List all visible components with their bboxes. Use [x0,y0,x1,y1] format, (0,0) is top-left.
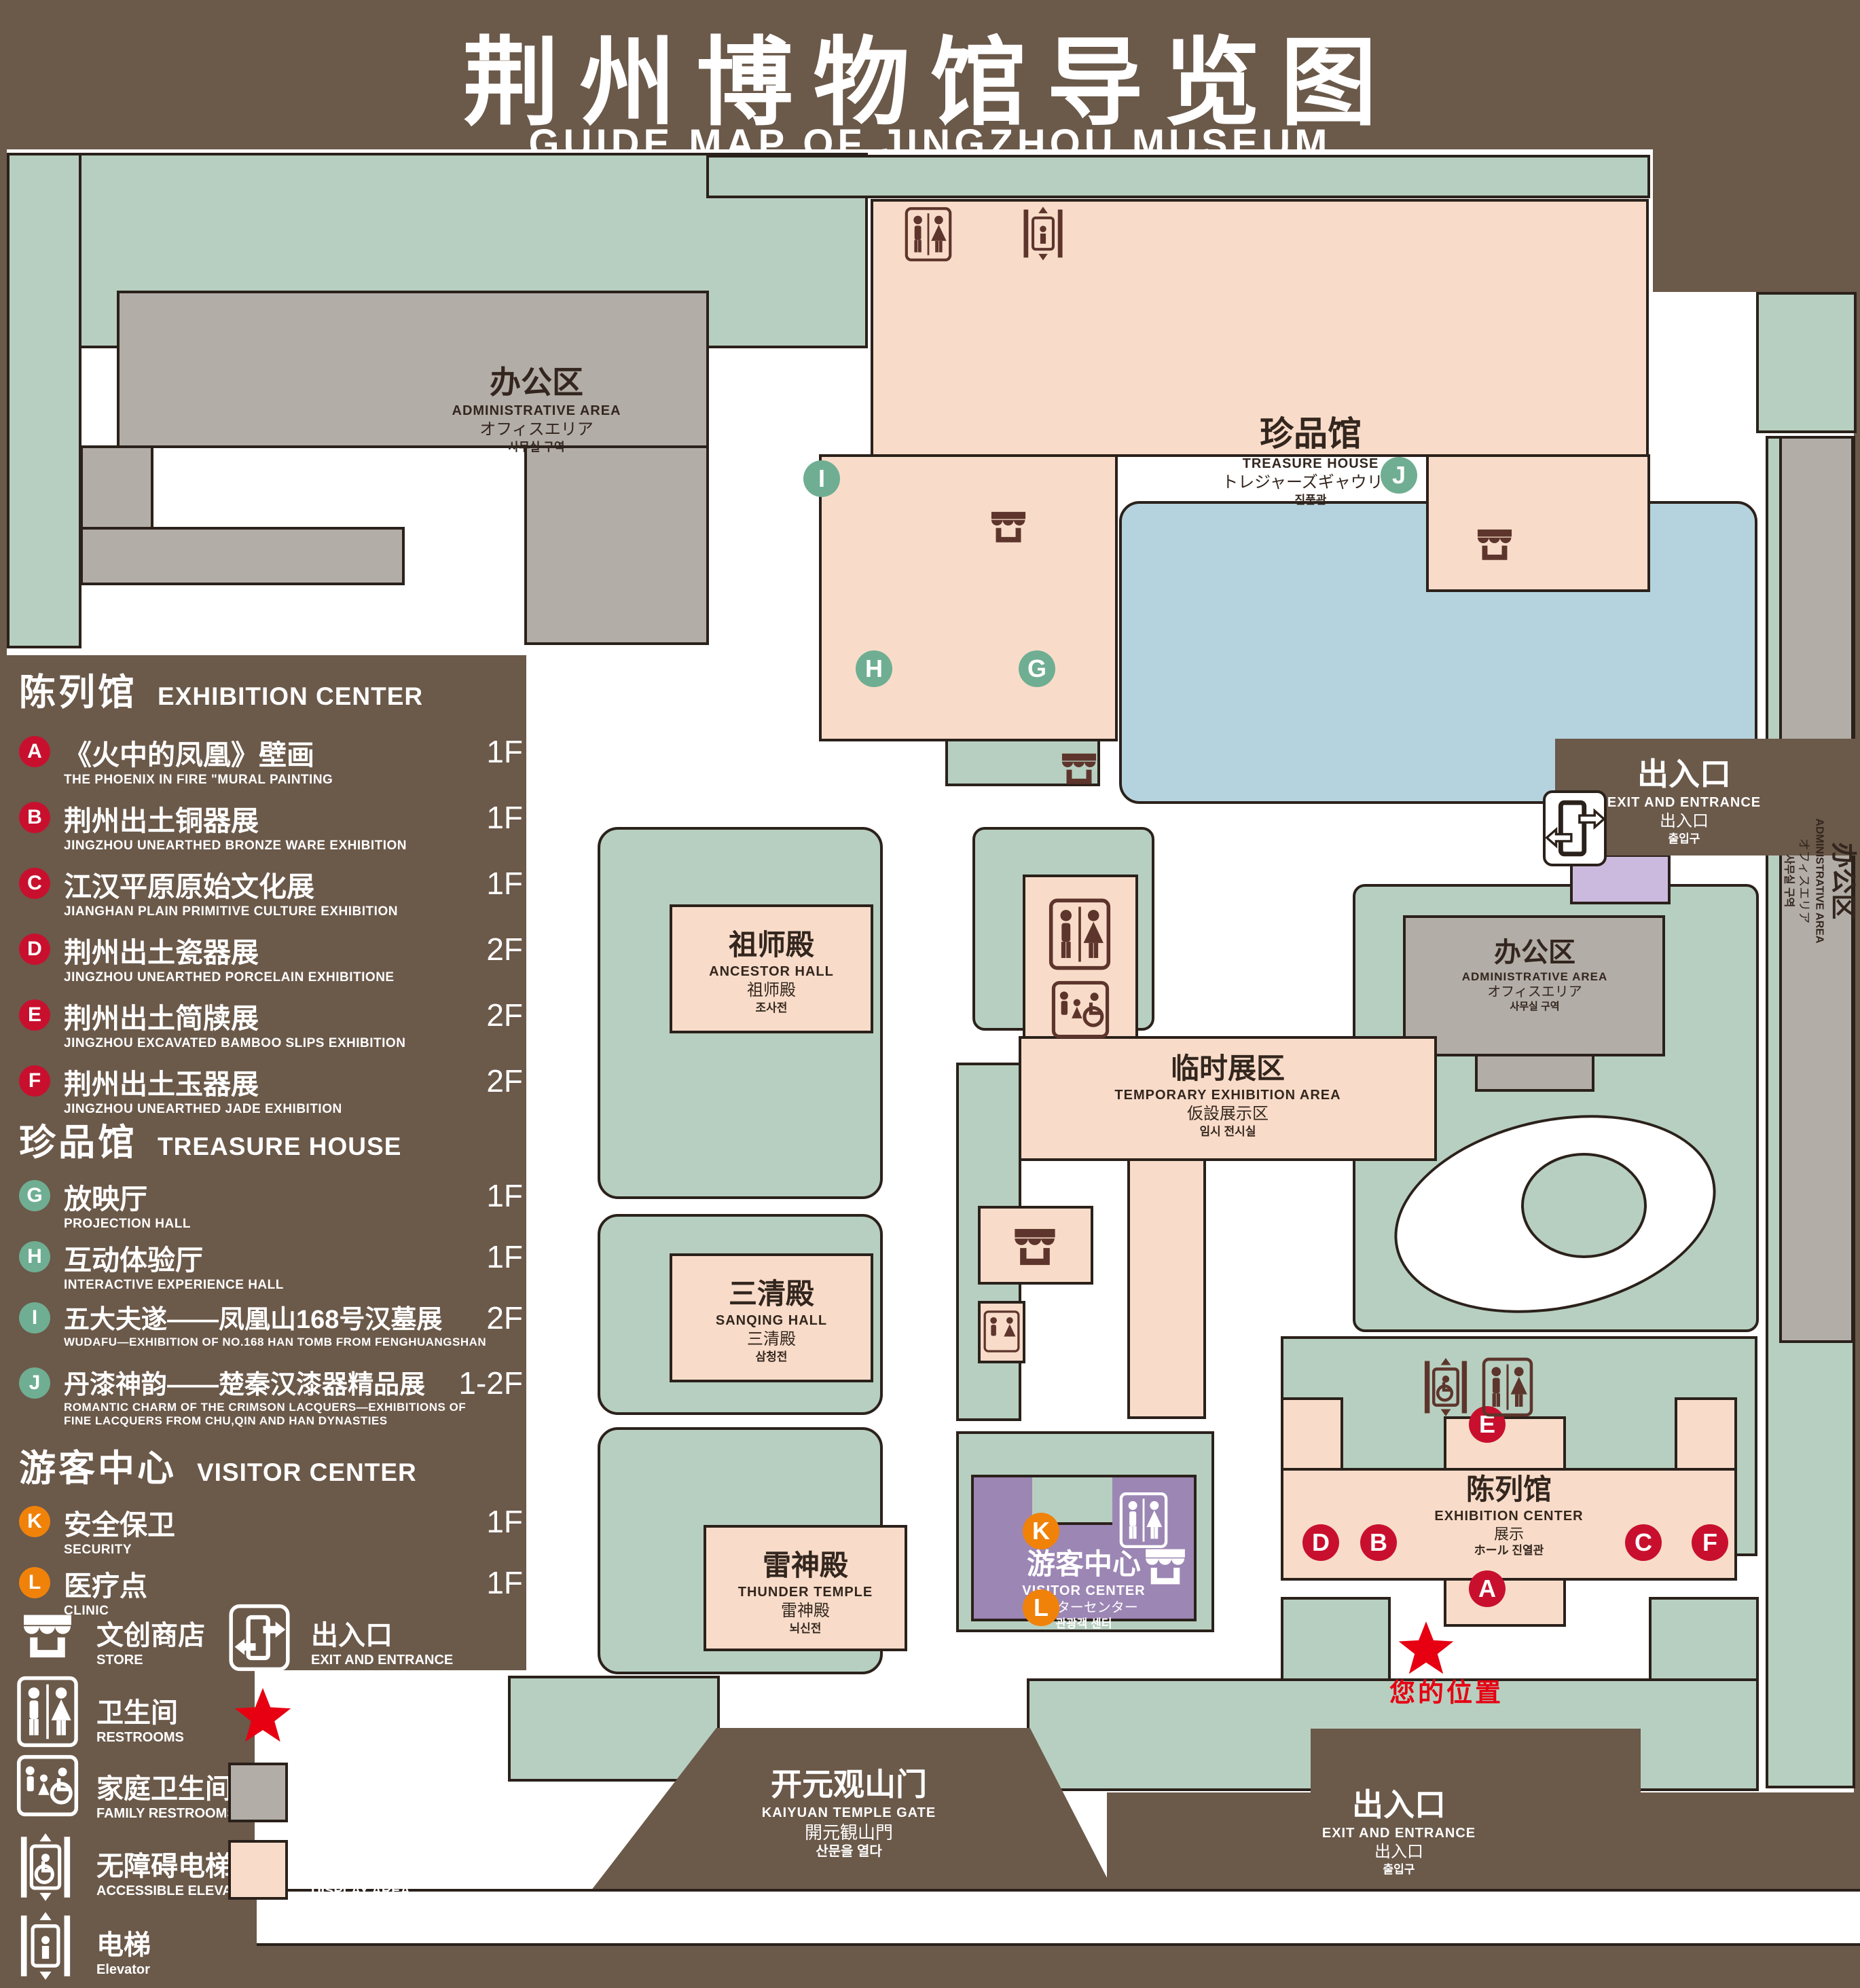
building-exhibition-center [1281,1397,1343,1471]
legend-elevator: 电梯 Elevator [96,1923,151,1978]
family-restrooms-icon [1051,980,1110,1039]
label-gate: 开元观山门 KAIYUAN TEMPLE GATE 開元観山門 산문을 열다 [679,1765,1019,1860]
restrooms-icon [905,206,952,262]
building-admin-left [524,445,709,645]
store-icon [16,1604,79,1666]
office-area-swatch [228,1763,288,1822]
marker-B: B [1360,1524,1397,1561]
your-location-star-icon [234,1688,292,1744]
legend-section-treasure: 珍品馆TREASURE HOUSE [19,1112,401,1166]
legend-restrooms: 卫生间 RESTROOMS [96,1691,184,1746]
display-area-swatch [228,1840,288,1900]
legend-exit: 出入口 EXIT AND ENTRANCE [311,1613,453,1668]
label-admin-right: 办公区 ADMINISTRATIVE AREA オフィスエリア 사무실 구역 [1406,936,1664,1014]
marker-L: L [1023,1589,1059,1626]
marker-C: C [1625,1524,1662,1561]
elevator-icon [1020,205,1066,262]
label-thunder-temple: 雷神殿 THUNDER TEMPLE 雷神殿 뇌신전 [670,1548,941,1636]
store-icon [1472,521,1517,566]
building-admin-right [1475,1054,1594,1092]
store-icon [1008,1219,1061,1272]
marker-J: J [1381,457,1417,494]
store-icon [1057,745,1101,790]
restrooms-icon [1482,1357,1533,1418]
label-admin-left: 办公区 ADMINISTRATIVE AREA オフィスエリア 사무실 구역 [258,363,815,454]
exit-icon [1543,790,1607,866]
family-restrooms-icon [16,1754,79,1817]
marker-G: G [1019,650,1055,687]
guide-map-page: { "header": { "title_zh": "荆州博物馆导览图", "t… [0,0,1860,1988]
label-ancestor-hall: 祖师殿 ANCESTOR HALL 祖师殿 조사전 [636,927,907,1015]
road [257,1889,1860,1946]
elevator-icon [16,1911,75,1981]
exit-icon [228,1604,291,1672]
marker-D: D [1302,1524,1339,1561]
marker-A: A [1469,1570,1506,1607]
label-exit-right: 出入口 EXIT AND ENTRANCE 出入口 출입구 [1582,755,1786,846]
marker-K: K [1023,1513,1059,1549]
label-exhibition-center: 陈列馆 EXHIBITION CENTER 展示 ホール 진열관 [1385,1472,1633,1558]
legend-item-E: E 荆州出土简牍展 JINGZHOU EXCAVATED BAMBOO SLIP… [19,995,523,1051]
legend-item-F: F 荆州出土玉器展 JINGZHOU UNEARTHED JADE EXHIBI… [19,1061,523,1117]
marker-F: F [1692,1524,1728,1561]
your-location-label: 您的位置 [1345,1672,1548,1709]
legend-family-restrooms: 家庭卫生间 FAMILY RESTROOMS [96,1767,236,1822]
legend-item-H: H 互动体验厅 INTERACTIVE EXPERIENCE HALL 1F [19,1237,523,1293]
legend-item-C: C 江汉平原原始文化展 JIANGHAN PLAIN PRIMITIVE CUL… [19,864,523,919]
marker-H: H [856,650,892,687]
label-sanqing-hall: 三清殿 SANQING HALL 三清殿 삼청전 [636,1276,907,1364]
legend-section-visitor: 游客中心VISITOR CENTER [19,1438,417,1492]
legend-item-J: J 丹漆神韵——楚秦汉漆器精品展 ROMANTIC CHARM OF THE C… [19,1363,523,1428]
label-temporary-exhibition: 临时展区 TEMPORARY EXHIBITION AREA 仮設展示区 임시 … [1024,1051,1432,1139]
label-exit-bottom: 出入口 EXIT AND ENTRANCE 出入口 출입구 [1297,1786,1501,1877]
building-treasure-house [819,454,1118,741]
legend-item-K: K 安全保卫 SECURITY 1F [19,1502,523,1558]
legend-your-location: 您的位置 YOUR LOCATION [311,1691,424,1746]
landscape [1756,292,1857,433]
pond-island [1521,1153,1647,1258]
building-exhibition-center [1675,1397,1737,1471]
building-temporary-exhibition [1127,1158,1206,1419]
store-icon [986,504,1031,549]
legend-item-B: B 荆州出土铜器展 JINGZHOU UNEARTHED BRONZE WARE… [19,798,523,853]
legend-office-area: 办公区域 OFFICE AREA [311,1767,420,1822]
legend-store: 文创商店 STORE [96,1613,205,1668]
legend-item-G: G 放映厅 PROJECTION HALL 1F [19,1176,523,1232]
label-admin-tall: 办公区 ADMINISTRATIVE AREA オフィスエリア 사무실 구역 [1781,684,1859,1078]
legend-section-exhibition: 陈列馆EXHIBITION CENTER [19,662,423,716]
legend-display-area: 展示区域 DISPLAY AREA [311,1844,420,1899]
restrooms-icon [1119,1491,1168,1549]
marker-I: I [803,460,840,497]
label-treasure-house: 珍品馆 TREASURE HOUSE トレジャーズギャウリー 진품관 [1107,413,1514,507]
restrooms-icon [983,1309,1020,1354]
your-location-star-icon [1398,1621,1455,1676]
legend-item-A: A 《火中的凤凰》壁画 THE PHOENIX IN FIRE "MURAL P… [19,732,523,788]
restrooms-icon [16,1676,79,1748]
building-admin-left [80,527,405,585]
legend-item-I: I 五大夫遂——凤凰山168号汉墓展 WUDAFU—EXHIBITION OF … [19,1298,523,1349]
landscape [706,155,1650,198]
accessible-elevator-icon [16,1832,75,1902]
accessible-elevator-icon [1421,1357,1471,1418]
landscape [7,153,81,648]
legend-item-D: D 荆州出土瓷器展 JINGZHOU UNEARTHED PORCELAIN E… [19,929,523,985]
restrooms-icon [1048,898,1111,971]
